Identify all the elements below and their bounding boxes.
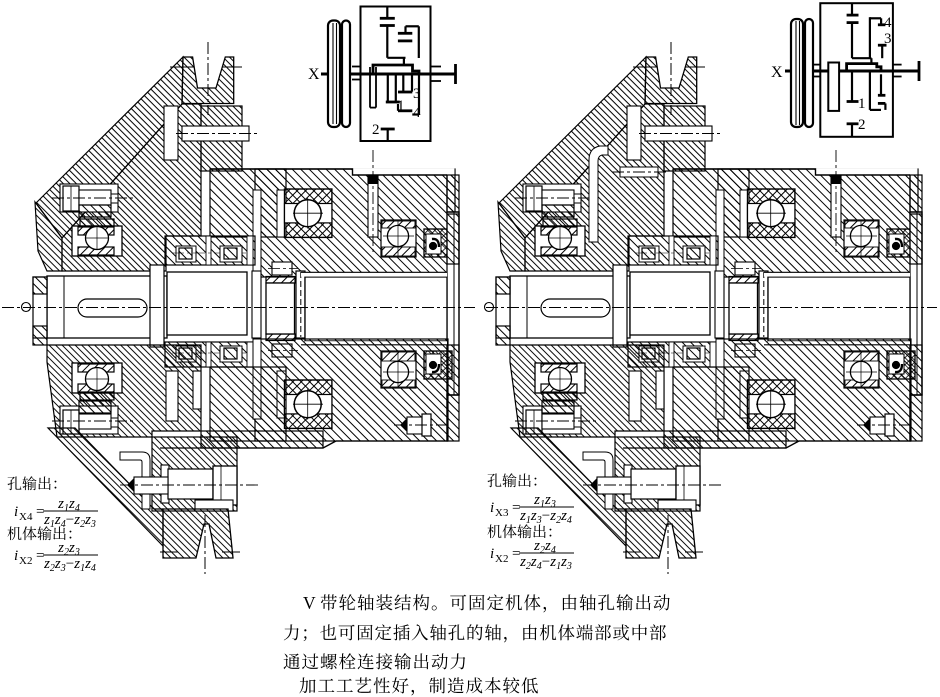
svg-text:i: i [490, 546, 494, 562]
svg-text:3: 3 [413, 86, 421, 102]
svg-text:3: 3 [884, 31, 892, 47]
svg-text:V: V [303, 593, 316, 613]
svg-text:2: 2 [372, 122, 380, 138]
svg-text:X4: X4 [19, 511, 33, 523]
svg-text:X: X [771, 64, 783, 81]
svg-text:4: 4 [413, 105, 421, 121]
svg-text:1: 1 [397, 98, 405, 114]
svg-text:1: 1 [858, 96, 866, 112]
svg-text:2: 2 [858, 117, 866, 133]
svg-text:i: i [14, 548, 18, 564]
svg-text:X3: X3 [495, 507, 509, 519]
svg-text:i: i [14, 504, 18, 520]
svg-text:4: 4 [884, 15, 892, 31]
svg-text:X: X [308, 66, 320, 83]
svg-text:X2: X2 [19, 555, 32, 567]
svg-text:X2: X2 [495, 553, 508, 565]
svg-text:i: i [490, 500, 494, 516]
